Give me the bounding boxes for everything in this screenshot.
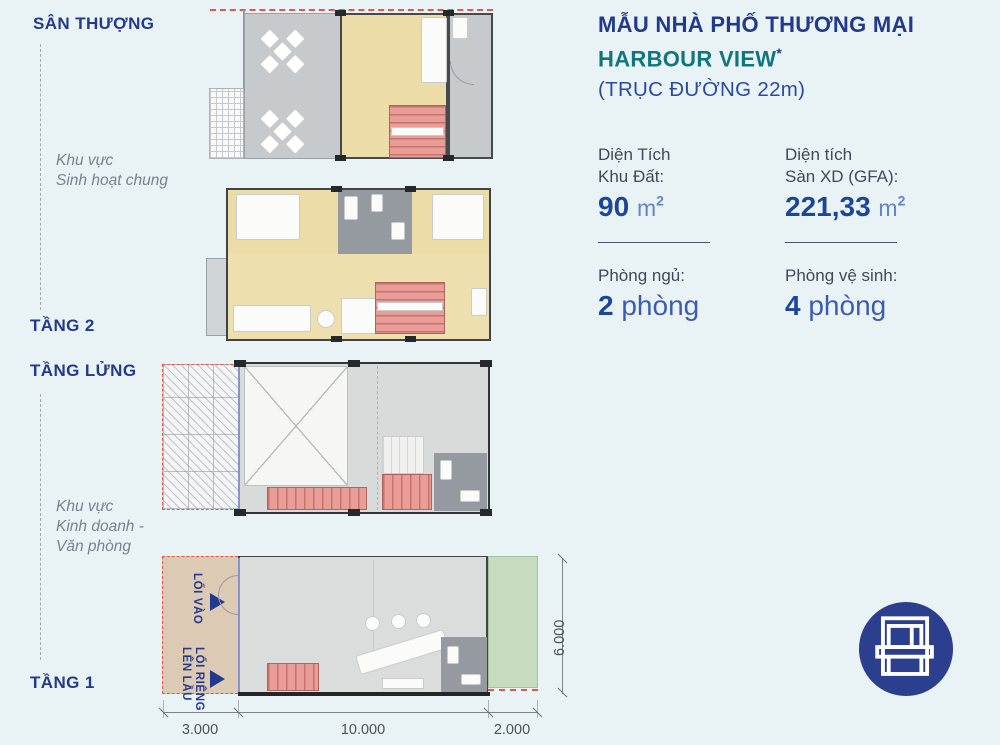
sofa bbox=[233, 305, 311, 332]
bar-stool bbox=[391, 614, 406, 629]
column bbox=[348, 509, 360, 516]
bar-stool bbox=[416, 613, 431, 628]
rooftop-floor-plan bbox=[205, 8, 493, 165]
column bbox=[405, 336, 416, 342]
rear-garden bbox=[488, 556, 538, 688]
toilet bbox=[391, 222, 405, 240]
column bbox=[443, 155, 454, 161]
asterisk-note: * bbox=[776, 45, 782, 61]
bathrooms-value: 4 phòng bbox=[785, 290, 886, 322]
bedrooms-unit: phòng bbox=[621, 290, 699, 321]
gfa-value: 221,33 m2 bbox=[785, 191, 905, 223]
bed bbox=[432, 194, 484, 240]
bedrooms-number: 2 bbox=[598, 290, 614, 321]
dimension-main-width: 10.000 bbox=[323, 722, 403, 738]
column bbox=[480, 360, 492, 367]
gfa-number: 221,33 bbox=[785, 191, 871, 222]
staircase bbox=[267, 487, 367, 510]
toilet bbox=[440, 460, 452, 480]
column bbox=[405, 186, 416, 192]
column bbox=[234, 509, 246, 516]
dimension-line bbox=[163, 712, 538, 713]
upper-stair-flight bbox=[382, 436, 424, 474]
rooftop-zone-label: Khu vực Sinh hoạt chung bbox=[56, 151, 168, 191]
land-area-unit-sup: 2 bbox=[656, 193, 664, 209]
partition-line bbox=[373, 560, 374, 656]
business-zone-line3: Văn phòng bbox=[56, 537, 144, 557]
floor1-label: TẦNG 1 bbox=[30, 673, 95, 693]
dimension-depth: 6.000 bbox=[552, 620, 568, 656]
column bbox=[331, 336, 342, 342]
column bbox=[331, 186, 342, 192]
business-zone-label: Khu vực Kinh doanh - Văn phòng bbox=[56, 497, 144, 557]
property-line bbox=[488, 689, 538, 691]
road-axis-label: (TRỤC ĐƯỜNG 22m) bbox=[598, 78, 805, 102]
partition-dashed-line bbox=[377, 366, 378, 510]
mezzanine-label: TẦNG LỬNG bbox=[30, 361, 136, 381]
extension-line bbox=[488, 700, 489, 718]
dimension-right-width: 2.000 bbox=[484, 722, 540, 738]
bathrooms-number: 4 bbox=[785, 290, 801, 321]
entrance-label: LỐI VÀO bbox=[190, 573, 203, 624]
rooftop-zone-line1: Khu vực bbox=[56, 151, 168, 171]
divider bbox=[598, 242, 710, 243]
staircase bbox=[267, 663, 319, 691]
double-height-void bbox=[244, 366, 348, 486]
canopy-skylight bbox=[162, 364, 238, 510]
counter-base bbox=[382, 678, 424, 689]
column bbox=[348, 360, 360, 367]
stair-landing bbox=[377, 302, 443, 311]
project-name-text: HARBOUR VIEW bbox=[598, 46, 776, 71]
mezzanine-plan bbox=[160, 360, 493, 518]
land-area-number: 90 bbox=[598, 191, 629, 222]
gfa-unit: m bbox=[878, 195, 897, 221]
gfa-label-line2: Sàn XD (GFA): bbox=[785, 166, 898, 188]
extension-line bbox=[238, 700, 239, 718]
bar-stool bbox=[365, 616, 380, 631]
building-icon bbox=[858, 601, 954, 697]
page-title: MẪU NHÀ PHỐ THƯƠNG MẠI bbox=[598, 12, 914, 38]
shopfront-line bbox=[238, 558, 240, 692]
bedrooms-label: Phòng ngủ: bbox=[598, 266, 685, 286]
business-zone-line2: Kinh doanh - bbox=[56, 517, 144, 537]
project-name: HARBOUR VIEW* bbox=[598, 45, 782, 72]
land-area-unit: m bbox=[637, 195, 656, 221]
column bbox=[443, 10, 454, 16]
private-entrance-arrow-icon bbox=[210, 670, 225, 688]
rooftop-zone-line2: Sinh hoạt chung bbox=[56, 171, 168, 191]
planter-deck bbox=[209, 88, 244, 159]
bottom-dimension-string: 3.000 10.000 2.000 bbox=[160, 700, 560, 745]
land-area-label-line1: Diện Tích bbox=[598, 144, 670, 166]
gfa-unit-sup: 2 bbox=[898, 193, 906, 209]
leader-dashed-line-top bbox=[40, 44, 41, 310]
business-zone-line1: Khu vực bbox=[56, 497, 144, 517]
sink-fixture bbox=[460, 490, 480, 502]
shophouse-badge-icon bbox=[858, 601, 954, 697]
extension-line bbox=[537, 700, 538, 718]
bed bbox=[421, 17, 447, 83]
stair-landing bbox=[391, 127, 444, 136]
sink-fixture bbox=[371, 194, 383, 212]
gfa-label-line1: Diện tích bbox=[785, 144, 898, 166]
setback-line bbox=[238, 364, 240, 512]
land-area-value: 90 m2 bbox=[598, 191, 664, 223]
dimension-left-width: 3.000 bbox=[172, 722, 228, 738]
winder-staircase bbox=[382, 474, 432, 510]
bed bbox=[236, 194, 300, 240]
column bbox=[480, 509, 492, 516]
land-area-label-line2: Khu Đất: bbox=[598, 166, 670, 188]
brochure-page: SÂN THƯỢNG Khu vực Sinh hoạt chung TẦNG … bbox=[0, 0, 1000, 745]
front-wall bbox=[238, 692, 490, 696]
rooftop-floor-label: SÂN THƯỢNG bbox=[33, 14, 154, 34]
washer bbox=[471, 288, 487, 316]
leader-dashed-line-bottom bbox=[40, 394, 41, 660]
bathrooms-unit: phòng bbox=[808, 290, 886, 321]
floor2-label: TẦNG 2 bbox=[30, 316, 95, 336]
sink-fixture bbox=[461, 674, 481, 685]
floor2-plan bbox=[205, 186, 493, 344]
bathtub bbox=[344, 196, 358, 220]
depth-dimension: 6.000 bbox=[546, 556, 596, 708]
roof-terrace bbox=[244, 13, 341, 159]
column bbox=[234, 360, 246, 367]
column bbox=[335, 155, 346, 161]
land-area-label: Diện Tích Khu Đất: bbox=[598, 144, 670, 188]
divider bbox=[785, 242, 897, 243]
sink-fixture bbox=[452, 17, 468, 39]
bathrooms-label: Phòng vệ sinh: bbox=[785, 266, 897, 286]
bedrooms-value: 2 phòng bbox=[598, 290, 699, 322]
gfa-label: Diện tích Sàn XD (GFA): bbox=[785, 144, 898, 188]
side-table bbox=[317, 310, 335, 328]
toilet bbox=[447, 646, 459, 664]
extension-line bbox=[163, 700, 164, 718]
column bbox=[335, 10, 346, 16]
